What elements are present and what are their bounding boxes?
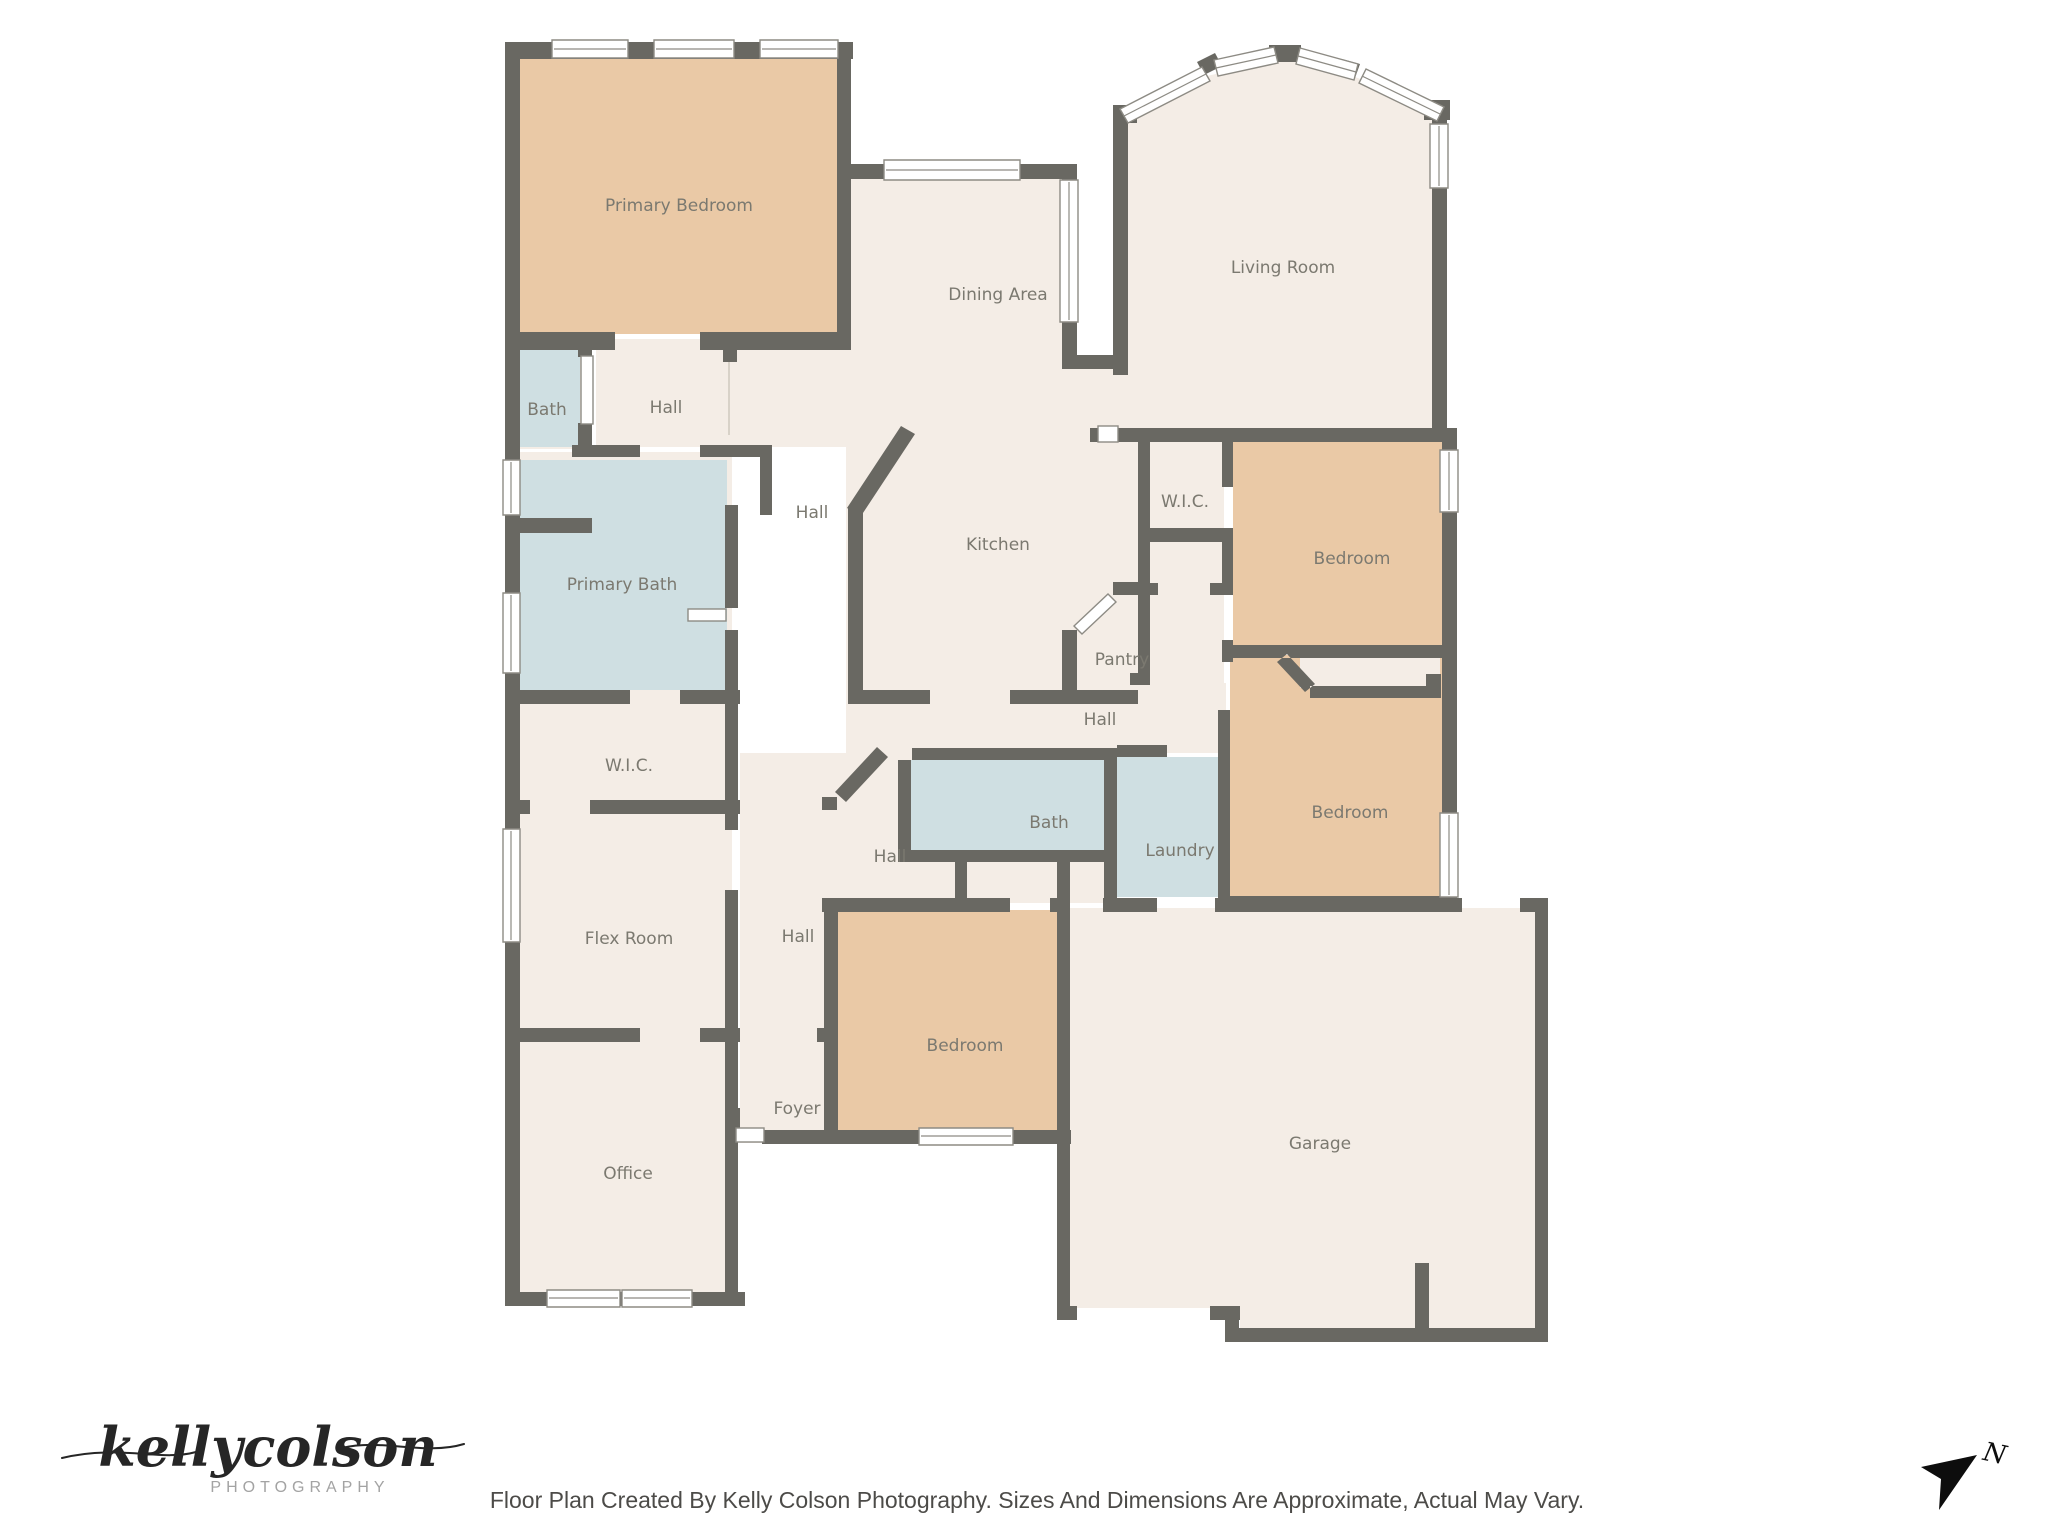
laundry-floor — [1117, 757, 1220, 897]
room-label-bedroom2: Bedroom — [1312, 803, 1389, 823]
logo-script-text: kellycolson — [98, 1415, 437, 1479]
room-label-hall-c: Hall — [1084, 710, 1117, 730]
room-label-bedroom1: Bedroom — [1314, 549, 1391, 569]
room-label-flex-room: Flex Room — [585, 929, 674, 949]
garage-floor — [1068, 908, 1538, 1308]
bedroom2-closet-floor — [1300, 658, 1440, 688]
entry-door-leaf — [736, 1128, 764, 1142]
dining-kitchen-floor — [846, 172, 1064, 692]
room-label-dining-area: Dining Area — [948, 285, 1047, 305]
room-label-hall-e: Hall — [782, 927, 815, 947]
room-label-primary-bedroom: Primary Bedroom — [605, 196, 753, 216]
room-label-wic-primary: W.I.C. — [605, 756, 653, 776]
living-room-floor — [1122, 58, 1438, 430]
room-label-living-room: Living Room — [1231, 258, 1335, 278]
north-arrow-letter: N — [1979, 1437, 2010, 1472]
room-label-wic-bedroom1: W.I.C. — [1161, 492, 1209, 512]
bedroom1-floor — [1233, 440, 1443, 647]
hall-bath-floor — [911, 760, 1105, 852]
room-label-bedroom3: Bedroom — [927, 1036, 1004, 1056]
bath-small-floor — [520, 345, 580, 447]
north-arrow-icon: N — [1921, 1437, 2010, 1510]
room-label-laundry: Laundry — [1145, 841, 1214, 861]
page: { "rooms": { "primary_bedroom": "Primary… — [0, 0, 2048, 1536]
room-label-bath-small: Bath — [527, 400, 567, 420]
wic-closet-corridor-floor — [1140, 442, 1224, 692]
disclaimer-text: Floor Plan Created By Kelly Colson Photo… — [490, 1487, 1584, 1513]
bath-door-leaf — [581, 356, 593, 424]
hall-upper-floor — [596, 339, 846, 447]
room-label-kitchen: Kitchen — [966, 535, 1030, 555]
room-label-office: Office — [603, 1164, 653, 1184]
kitchen-opening-sill — [1098, 426, 1118, 442]
bedroom3-floor — [838, 910, 1058, 1132]
room-label-hall-d: Hall — [874, 847, 907, 867]
room-label-foyer: Foyer — [773, 1099, 820, 1119]
floor-plan: Primary Bedroom Dining Area Living Room … — [0, 0, 2048, 1536]
room-label-primary-bath: Primary Bath — [567, 575, 678, 595]
north-arrow-shape — [1921, 1455, 1977, 1510]
room-label-hall-bath: Bath — [1029, 813, 1069, 833]
garage-se-floor — [1240, 1308, 1540, 1330]
photographer-logo: kellycolson PHOTOGRAPHY — [62, 1415, 464, 1496]
room-label-hall-b: Hall — [796, 503, 829, 523]
room-label-pantry: Pantry — [1095, 650, 1149, 670]
room-label-hall-a: Hall — [650, 398, 683, 418]
logo-word-text: PHOTOGRAPHY — [210, 1479, 389, 1496]
room-label-garage: Garage — [1289, 1134, 1351, 1154]
primary-bath-door-leaf — [688, 609, 726, 621]
